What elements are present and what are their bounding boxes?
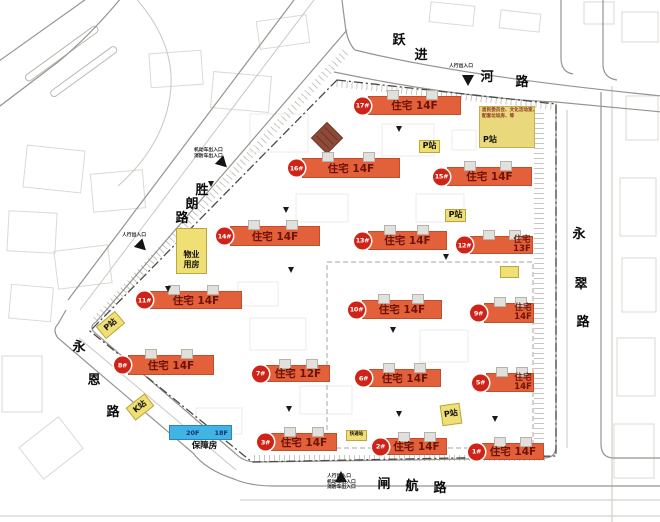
building-number-badge: 15# [433,168,450,185]
building-label: 住宅14F [509,303,537,323]
road-name-char: 路 [514,75,530,91]
building-number-badge: 13# [354,232,371,249]
building-number-badge: 11# [136,292,153,309]
road-name-char: 恩 [86,373,102,389]
building-3: 3#住宅 14F [271,433,337,451]
facility-快递站: 快递站 [346,430,367,441]
community-facility-annotation: 居民委员会、文化活动室、 配套垃圾房、等 P站 [479,106,535,148]
road-name-char: 航 [404,479,420,495]
building-label: 住宅 14F [128,355,214,375]
building-number-badge: 17# [354,97,371,114]
facility-label: K站 [132,399,149,415]
road-name-char: 河 [479,70,495,86]
building-label: 住宅 14F [368,96,461,115]
unit-entrance-marker-icon [443,254,449,260]
annotation-line: 配套垃圾房、等 [480,113,534,119]
unit-entrance-marker-icon [165,286,171,292]
site-plan: 居民委员会、文化活动室、 配套垃圾房、等 P站 20F 18F 保障房 跃进河路… [0,0,660,522]
road-name-char: 闸 [376,477,392,493]
affordable-housing-caption: 保障房 [169,439,240,451]
building-1: 1#住宅 14F [482,443,544,460]
building-label: 住宅13F [508,236,536,254]
building-label: 住宅 14F [230,226,320,246]
facility-box [500,266,519,278]
building-7: 7#住宅 12F [266,365,330,382]
road-name-char: 路 [174,211,190,227]
building-10: 10#住宅 14F [362,300,442,319]
building-label: 住宅 14F [150,291,242,309]
entrance-label: 人行出入口 [449,64,473,70]
unit-entrance-marker-icon [286,406,292,412]
building-label: 住宅 14F [271,433,337,451]
unit-entrance-marker-icon [396,126,402,132]
building-label: 住宅 12F [266,365,330,382]
building-label: 住宅 14F [362,300,442,319]
rooftop-core [483,230,495,240]
road-name-char: 跃 [391,33,407,49]
building-label: 住宅14F [509,373,537,392]
affordable-floor-label: 20F [186,429,200,437]
rooftop-core [494,297,506,307]
unit-entrance-marker-icon [390,327,396,333]
building-number-badge: 3# [257,434,274,451]
rooftop-core [496,367,508,377]
building-number-badge: 5# [472,374,489,391]
unit-entrance-marker-icon [396,411,402,417]
unit-entrance-marker-icon [288,267,294,273]
road-name-char: 永 [571,227,587,243]
building-label: 住宅 14F [386,438,447,455]
building-number-badge: 10# [348,301,365,318]
building-16: 16#住宅 14F [302,158,400,178]
building-13: 13#住宅 14F [368,231,447,250]
facility-label: P站 [423,142,437,151]
facility-物业用房: 物业用房 [176,228,207,274]
building-12: 12#住宅13F [470,236,533,254]
road-name-char: 路 [432,481,448,497]
road-name-char: 路 [105,405,121,421]
building-6: 6#住宅 14F [369,369,441,387]
building-15: 15#住宅 14F [447,167,532,186]
building-number-badge: 16# [288,160,305,177]
facility-label: 快递站 [350,433,364,438]
facility-label: P站 [444,409,459,419]
facility-P站: P站 [419,140,440,153]
unit-entrance-marker-icon [492,416,498,422]
building-number-badge: 14# [216,228,233,245]
building-9: 9#住宅14F [484,303,534,323]
facility-label: 物业 [184,250,200,260]
building-number-badge: 8# [114,357,131,374]
affordable-housing-bar: 20F 18F [169,425,232,440]
road-name-char: 翠 [573,277,589,293]
building-number-badge: 2# [372,438,389,455]
facility-P站: P站 [445,209,466,222]
building-17: 17#住宅 14F [368,96,461,115]
facility-label: 用房 [184,260,200,270]
p-station-label: P站 [480,134,534,147]
entrance-arrow-icon [335,471,347,482]
building-label: 住宅 14F [447,167,532,186]
building-number-badge: 1# [468,443,485,460]
unit-entrance-marker-icon [283,207,289,213]
entrance-arrow-icon [462,75,474,86]
building-number-badge: 7# [252,365,269,382]
building-number-badge: 6# [355,370,372,387]
building-2: 2#住宅 14F [386,438,447,455]
building-label: 住宅 14F [482,443,544,460]
affordable-floor-label: 18F [215,429,229,437]
facility-label: P站 [449,211,463,220]
affordable-housing: 20F 18F 保障房 [169,425,232,451]
building-label: 住宅 14F [369,369,441,387]
facility-label: P站 [102,317,118,333]
road-name-char: 永 [71,340,87,356]
building-number-badge: 9# [470,305,487,322]
road-name-char: 进 [413,48,429,64]
road-name-char: 路 [575,315,591,331]
facility-P站: P站 [440,403,463,427]
building-14: 14#住宅 14F [230,226,320,246]
building-label: 住宅 14F [368,231,447,250]
building-8: 8#住宅 14F [128,355,214,375]
building-5: 5#住宅14F [486,373,534,392]
building-label: 住宅 14F [302,158,400,178]
building-11: 11#住宅 14F [150,291,242,309]
building-number-badge: 12# [456,237,473,254]
entrance-label: 机动车出入口消防车出入口 [194,148,223,159]
